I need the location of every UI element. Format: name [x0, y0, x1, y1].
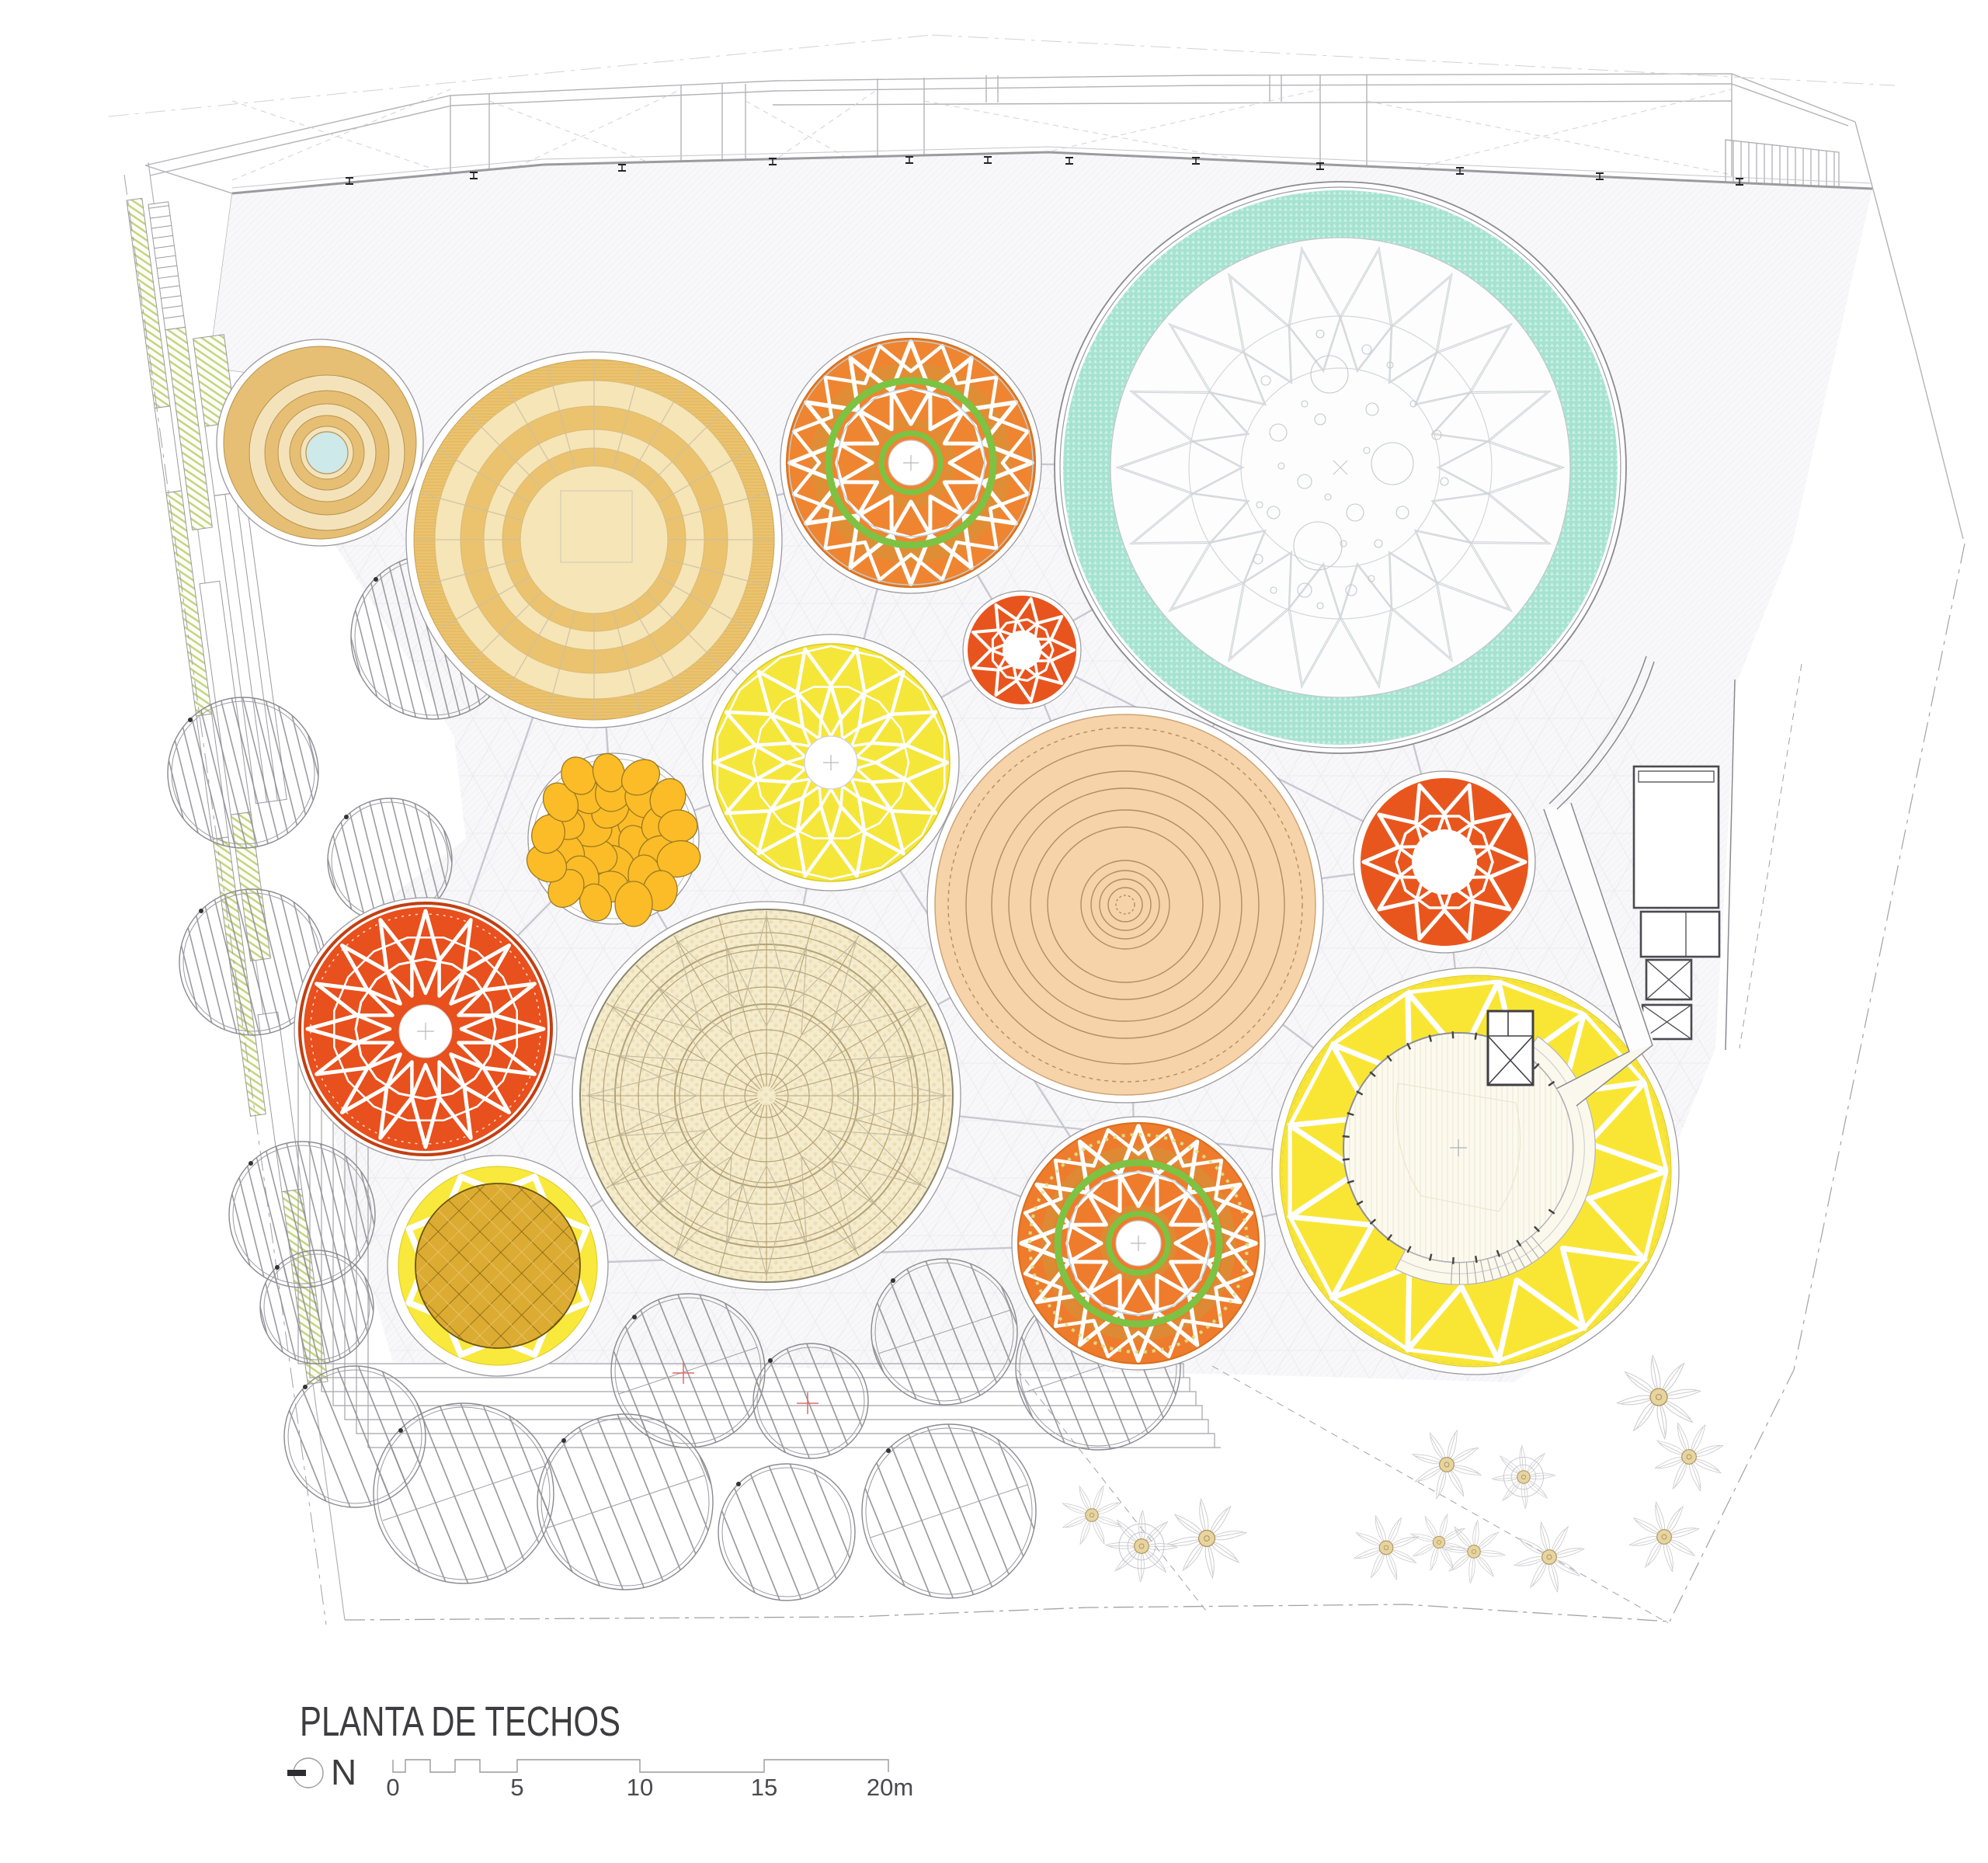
- svg-text:N: N: [331, 1752, 356, 1792]
- svg-text:5: 5: [510, 1774, 523, 1801]
- svg-text:10: 10: [627, 1774, 653, 1801]
- svg-text:0: 0: [386, 1774, 399, 1801]
- svg-text:PLANTA DE TECHOS: PLANTA DE TECHOS: [300, 1698, 620, 1745]
- svg-text:20m: 20m: [867, 1774, 913, 1801]
- svg-text:15: 15: [751, 1774, 777, 1801]
